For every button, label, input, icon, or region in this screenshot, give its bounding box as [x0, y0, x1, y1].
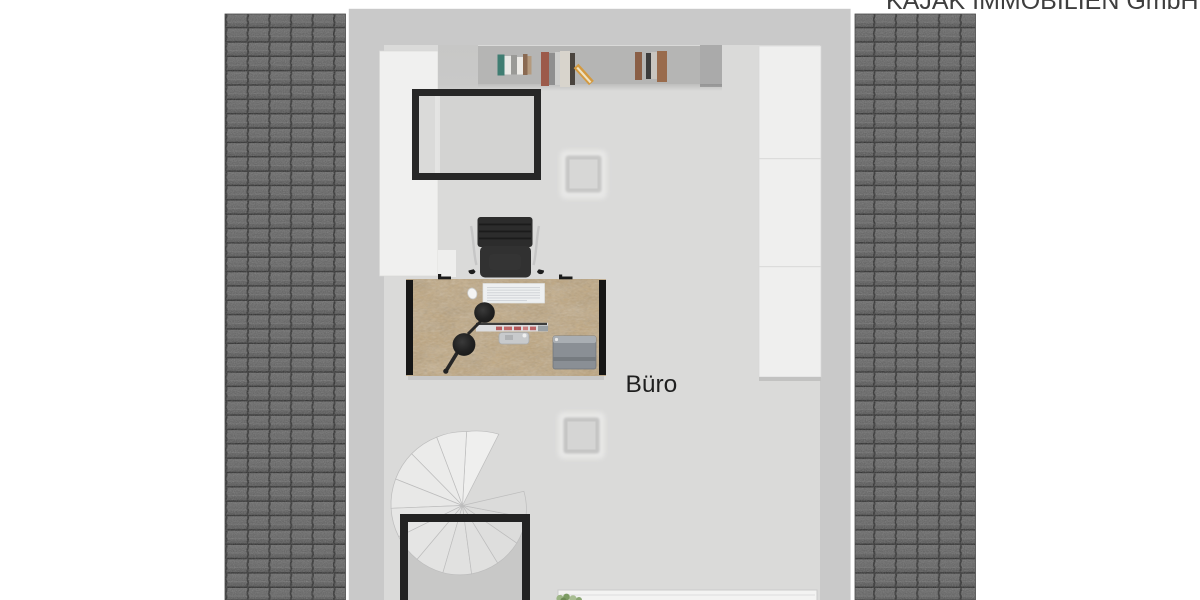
svg-text:KAJAK IMMOBILIEN GmbH: KAJAK IMMOBILIEN GmbH: [886, 0, 1199, 15]
svg-text:Büro: Büro: [626, 371, 678, 398]
